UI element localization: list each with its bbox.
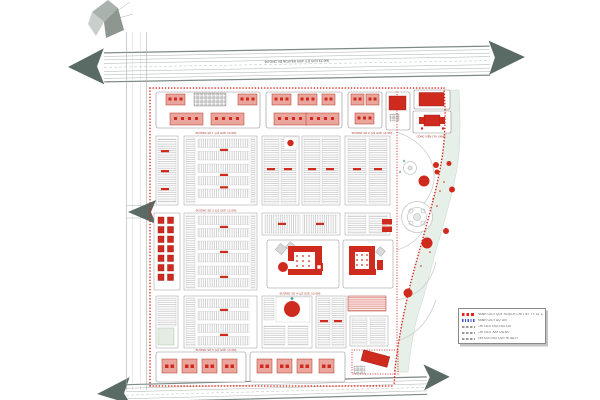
legend-item: RANH GIỚI DỰ ÁN [462,318,543,323]
road-label: ĐƯỜNG SỐ 3 (LỘ GIỚI 13.0M) [196,207,237,212]
legend-item-label: RANH GIỚI DỰ ÁN [478,319,507,322]
gray-dashed-line-symbol [462,332,475,334]
legend-item-label: TIM ĐƯỜNG QUY HOẠCH [478,337,518,340]
arrow-west-exit-icon [128,200,156,224]
tilted-public-building [352,350,398,374]
left-perimeter-road [127,32,157,390]
green-plot [158,328,174,345]
apartment-row-bottom [156,350,398,382]
gray-dashed-line-symbol [462,326,475,328]
villa-strip [154,213,180,290]
legend-item: RANH GIỚI QUY HOẠCH CHI TIẾT TỶ LỆ 1/500 [462,312,543,317]
master-plan-map: ĐƯỜNG VÕ NGUYÊN GIÁP (LỘ GIỚI 61.0M) [0,0,600,400]
townhouse-row-1 [156,136,390,205]
road-label: ĐƯỜNG SỐ 1 (LỘ GIỚI 13.0M) [196,130,237,135]
road-label: ĐƯỜNG SỐ 4 (LỘ GIỚI 13.0M) [280,290,321,295]
arrow-west-icon [68,48,105,85]
gray-dashed-line-symbol [462,338,475,340]
school-playground [278,262,288,272]
top-highway-label: ĐƯỜNG VÕ NGUYÊN GIÁP (LỘ GIỚI 61.0M) [265,58,330,64]
apartment-row-top [156,92,410,130]
arrow-east-icon [489,40,526,75]
legend-box: RANH GIỚI QUY HOẠCH CHI TIẾT TỶ LỆ 1/500… [458,308,546,344]
arrow-west-icon [97,377,131,400]
park-label: CÔNG VIÊN CÂY XANH [417,134,446,139]
kindergarten-block [276,297,310,322]
playground-circle [287,140,293,146]
blue-dotted-line-symbol [462,319,475,321]
red-hatched-building [348,296,386,311]
legend-item: CHỈ GIỚI XÂY DỰNG [462,331,543,336]
kindergarten-building [424,115,440,126]
legend-item-label: CHỈ GIỚI XÂY DỰNG [478,331,510,334]
top-highway: ĐƯỜNG VÕ NGUYÊN GIÁP (LỘ GIỚI 61.0M) [68,40,526,85]
legend-item-label: RANH GIỚI QUY HOẠCH CHI TIẾT TỶ LỆ 1/500 [478,313,544,316]
school-block-1 [267,240,339,288]
school-block-2 [343,240,393,288]
road-label: ĐƯỜNG SỐ 2 (LỘ GIỚI 13.0M) [352,130,393,135]
legend-item-label: CHỈ GIỚI ĐƯỜNG ĐỎ [478,325,512,328]
legend-item: TIM ĐƯỜNG QUY HOẠCH [462,337,543,342]
arrow-east-icon [423,364,450,391]
legend-item: CHỈ GIỚI ĐƯỜNG ĐỎ [462,324,543,329]
townhouse-row-3 [156,296,388,348]
red-dashed-line-symbol [462,313,475,316]
school-building [419,93,444,107]
road-label: ĐƯỜNG SỐ 5 (LỘ GIỚI 13.0M) [196,347,237,352]
